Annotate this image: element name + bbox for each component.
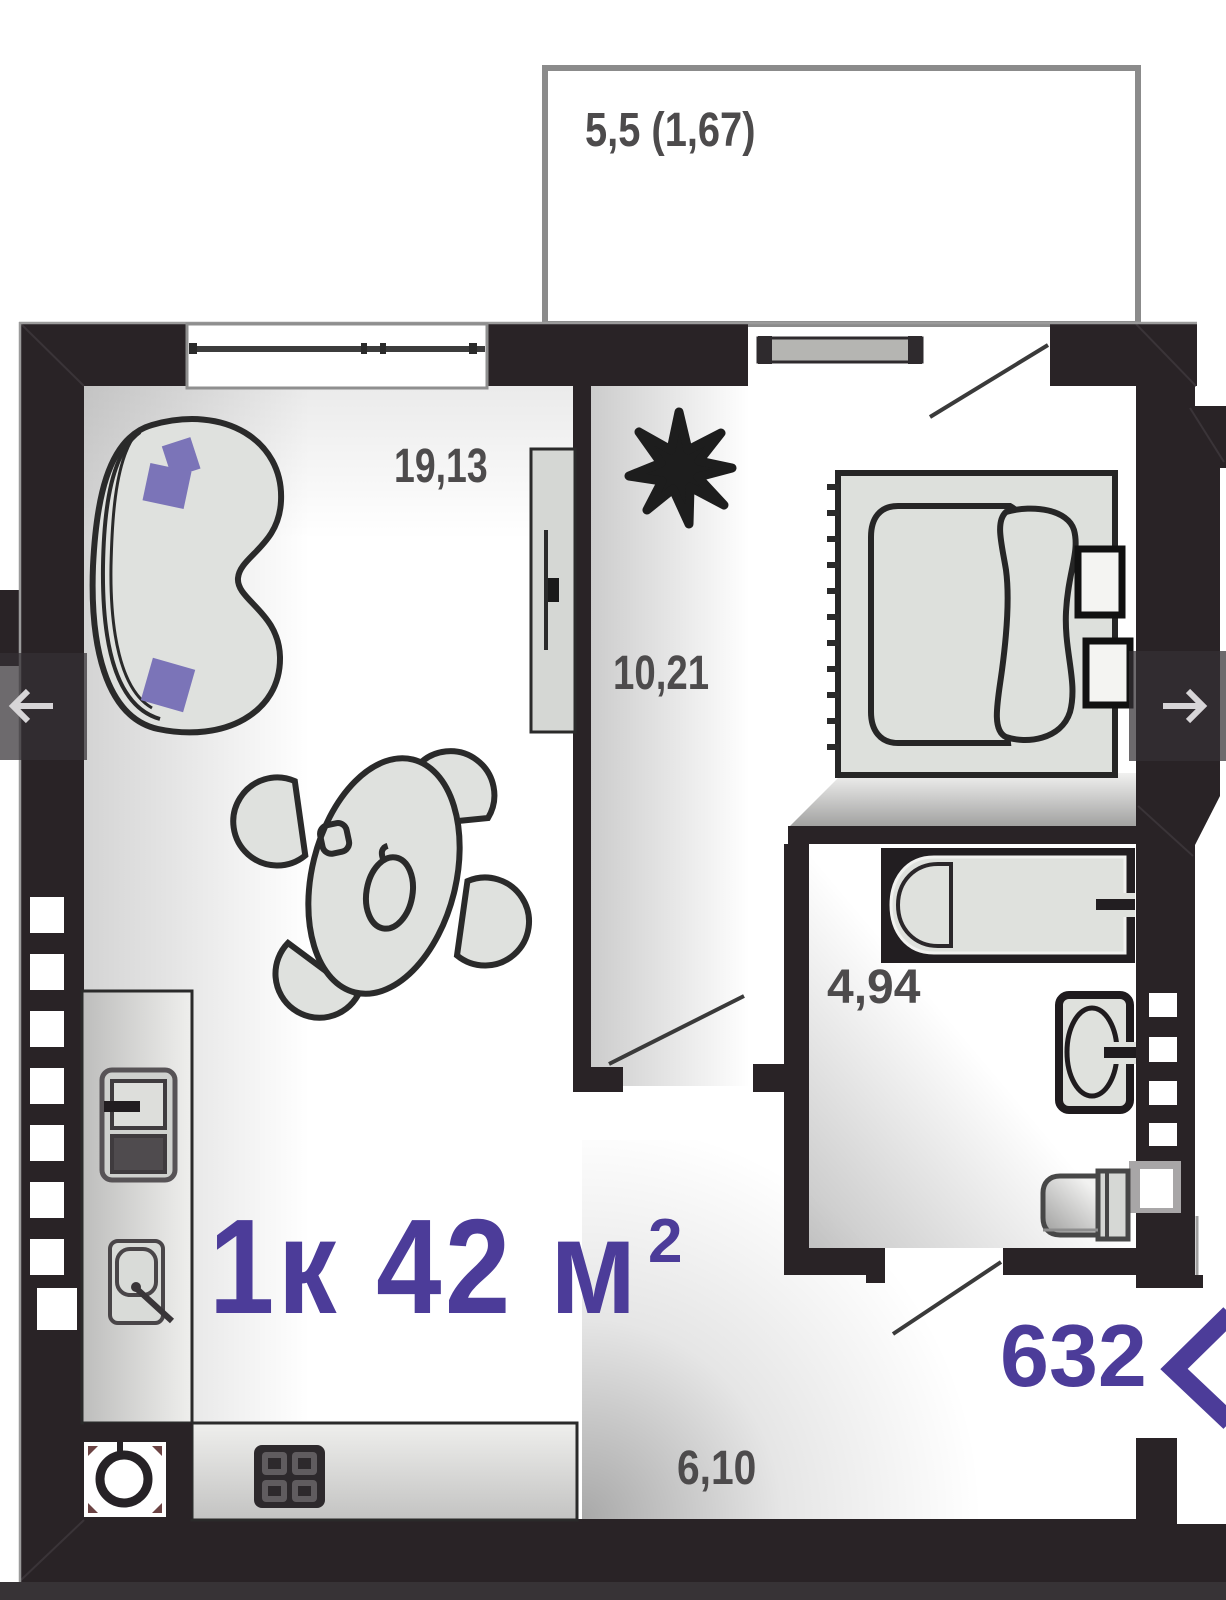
svg-text:1к 42 м: 1к 42 м bbox=[209, 1190, 640, 1342]
svg-text:5,5 (1,67): 5,5 (1,67) bbox=[585, 104, 755, 157]
svg-text:10,21: 10,21 bbox=[613, 647, 709, 700]
svg-text:19,13: 19,13 bbox=[394, 440, 488, 494]
svg-text:4,94: 4,94 bbox=[827, 961, 921, 1014]
svg-text:6,10: 6,10 bbox=[677, 1442, 756, 1495]
svg-text:632: 632 bbox=[1000, 1306, 1147, 1405]
svg-text:2: 2 bbox=[648, 1207, 682, 1276]
